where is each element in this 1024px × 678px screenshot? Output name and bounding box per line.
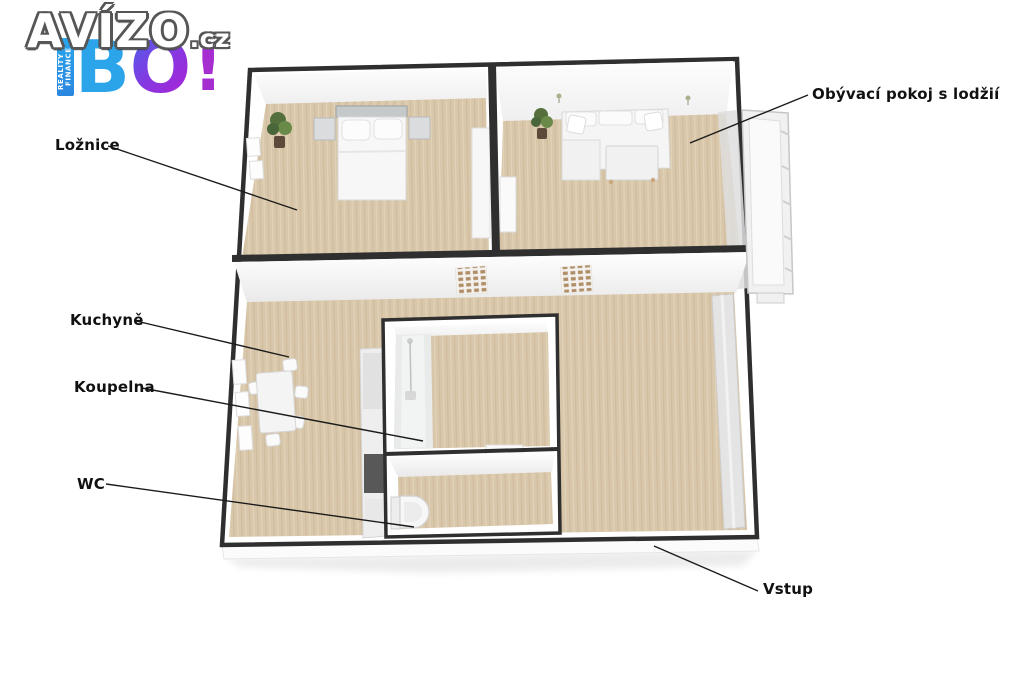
- tv-sideboard: [500, 177, 516, 232]
- shower: [394, 334, 433, 449]
- nightstand-right: [409, 117, 430, 139]
- radiator-grille: [560, 265, 593, 293]
- label-wc: WC: [77, 475, 105, 493]
- avizo-wordmark: AVÍZO: [27, 4, 190, 58]
- label-koupelna: Koupelna: [74, 378, 155, 396]
- label-loznice: Ložnice: [55, 136, 120, 154]
- radiator-grille: [455, 266, 488, 295]
- loggia: [742, 110, 793, 303]
- bedroom: [242, 68, 490, 258]
- avizo-tld: .cz: [190, 24, 230, 53]
- dining-table: [256, 371, 296, 433]
- coffee-table: [606, 146, 658, 184]
- floorplan-listing-image: Ložnice Obývací pokoj s lodžií Kuchyně K…: [0, 0, 1024, 678]
- bathroom-wc-block: [383, 315, 560, 537]
- avizobo-logo: AVÍZO.cz REALITY & FINANCE B O !: [27, 8, 230, 96]
- label-vstup: Vstup: [763, 580, 813, 598]
- label-obyvaci: Obývací pokoj s lodžií: [812, 85, 999, 103]
- label-kuchyne: Kuchyně: [70, 311, 144, 329]
- bed: [336, 106, 407, 200]
- bedroom-wardrobe: [472, 128, 490, 238]
- nightstand-left: [314, 118, 335, 140]
